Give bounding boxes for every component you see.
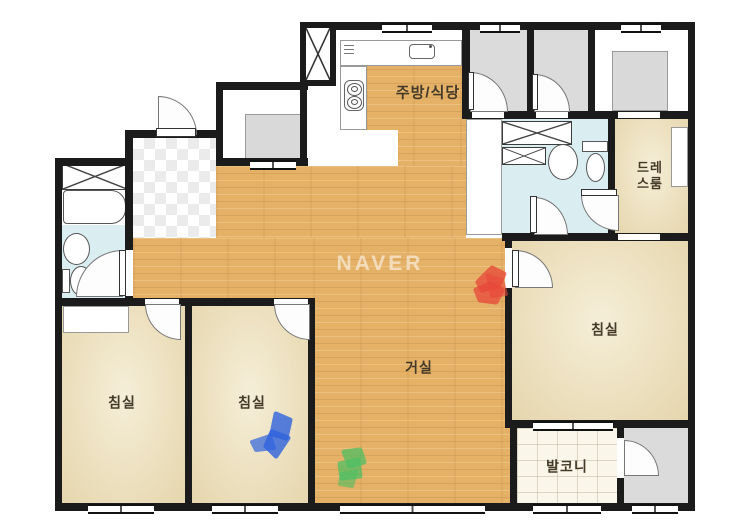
wall-segment [185,303,192,503]
wall-segment [588,27,595,113]
dishrack-icon [344,45,354,57]
kitchen-counter-top [340,40,462,66]
closet-x-bath-b [502,147,546,165]
window [382,23,432,33]
door-opening [617,438,624,478]
window [480,23,520,33]
balcony-window [533,421,613,431]
wall-segment [55,158,62,511]
room-label-bedroom-left: 침실 [108,394,136,412]
wall-segment [55,158,133,166]
window [88,504,154,514]
bath-main-door2-leaf [581,189,617,196]
wall-segment [216,82,223,166]
room-label-balcony: 발코니 [546,458,588,476]
bedroom-left-closet [63,306,129,333]
kitchen-counter-floor-notch [342,130,398,168]
door-opening [618,112,660,118]
room-label-bedroom-right: 침실 [591,321,619,339]
toilet-main-icon [586,153,605,182]
toilet-tank-left-icon [62,269,70,293]
entry-door-leaf [156,128,196,137]
wall-segment [300,82,307,166]
window [533,504,601,514]
naver-watermark: NAVER [337,252,424,276]
floorplan-canvas: 주방/식당 드레 스룸 침실 침실 침실 거실 발코니 NAVER [0,0,750,528]
cabinet-box [245,114,303,160]
door-opening [472,112,504,118]
blue-marker-scribble [246,408,300,466]
entry-checker-floor [133,138,216,238]
washbasin-left-icon [63,233,90,265]
burner-icon [347,96,362,109]
window [250,160,296,170]
closet-x-topleft [62,163,128,190]
stove-icon [344,80,364,111]
room-label-kitchen: 주방/식당 [396,85,460,104]
window [632,504,678,514]
washbasin-main-icon [548,144,578,180]
bath-main-door-leaf [530,196,537,233]
wall-segment [688,22,695,511]
living-room-window [340,504,485,514]
wall-segment [510,420,517,511]
toilet-tank-main-icon [582,141,608,152]
storage-cabinet-box [612,51,668,111]
dressroom-closet [671,127,688,187]
door-opening [125,250,133,296]
burner-icon [347,83,362,96]
utility-a-door-leaf [468,72,474,110]
room-label-dressroom: 드레 스룸 [637,160,663,193]
utility-b-door-leaf [532,74,538,110]
wall-segment [216,82,308,90]
wall-segment [502,233,691,241]
red-marker-scribble [468,260,514,308]
closet-x-bath-a [502,121,572,145]
bathtub-icon [63,190,126,224]
window [621,23,661,33]
door-opening [536,112,568,118]
door-opening [618,234,660,240]
window [212,504,278,514]
room-label-living: 거실 [405,359,433,377]
hallway-wood-floor [133,238,313,300]
bath-left-door-leaf [119,250,126,296]
green-marker-scribble [330,444,370,492]
corridor-wood-floor [216,166,466,240]
faucet-icon [429,45,432,48]
vanity-cabinet [466,119,502,235]
structural-column-x [300,22,336,86]
